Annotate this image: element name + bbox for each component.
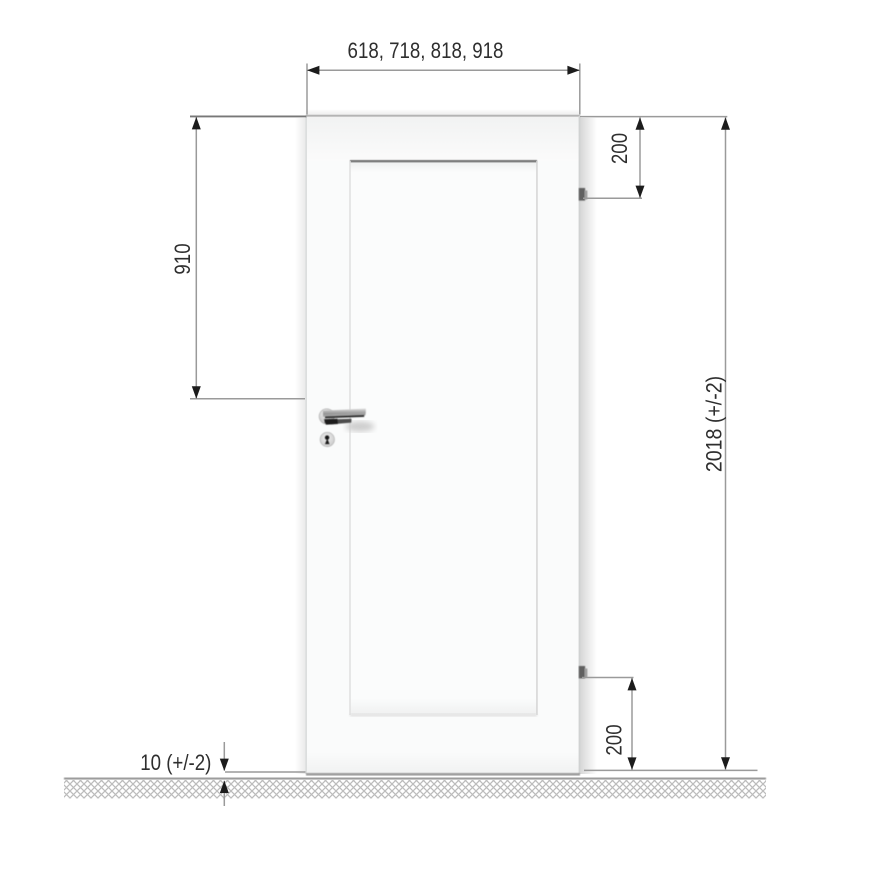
svg-text:200: 200: [609, 133, 633, 164]
svg-text:10 (+/-2): 10 (+/-2): [140, 752, 211, 776]
svg-text:618, 718, 818, 918: 618, 718, 818, 918: [348, 40, 504, 64]
svg-text:2018 (+/-2): 2018 (+/-2): [703, 376, 727, 472]
svg-text:200: 200: [603, 724, 627, 755]
svg-text:910: 910: [172, 243, 196, 274]
